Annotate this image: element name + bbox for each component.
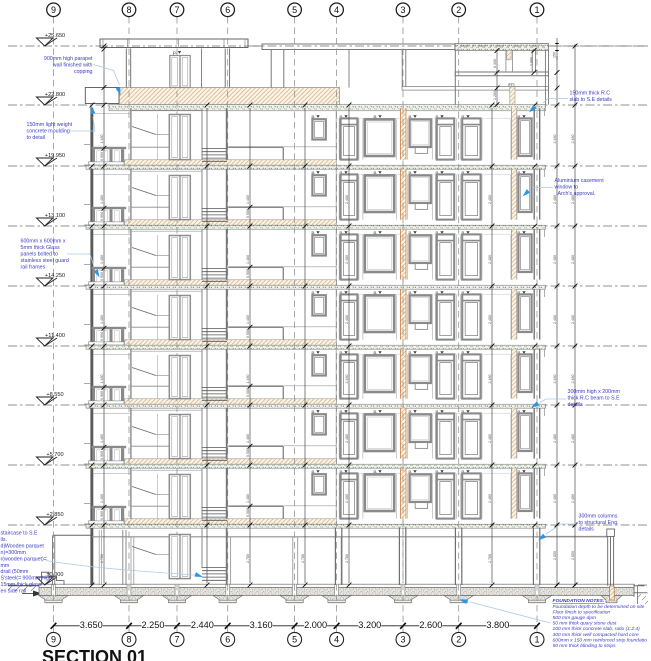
svg-text:2.480: 2.480 bbox=[571, 135, 575, 144]
svg-text:6: 6 bbox=[225, 5, 230, 15]
svg-text:2.780: 2.780 bbox=[246, 554, 250, 563]
svg-text:0.900: 0.900 bbox=[100, 152, 104, 161]
svg-text:rail frames: rail frames bbox=[21, 265, 46, 271]
svg-text:FOUNDATION NOTES:: FOUNDATION NOTES: bbox=[553, 598, 605, 604]
svg-text:window to: window to bbox=[555, 185, 579, 191]
svg-text:7: 7 bbox=[174, 634, 179, 644]
svg-text:0.580: 0.580 bbox=[246, 329, 250, 338]
svg-text:3: 3 bbox=[400, 634, 405, 644]
svg-text:2.480: 2.480 bbox=[571, 494, 575, 503]
svg-text:8: 8 bbox=[126, 634, 131, 644]
svg-text:details: details bbox=[579, 527, 595, 533]
svg-text:1.880: 1.880 bbox=[530, 57, 534, 66]
svg-text:concrete moulding: concrete moulding bbox=[27, 129, 70, 135]
svg-text:2.250: 2.250 bbox=[142, 620, 165, 630]
svg-text:3.800: 3.800 bbox=[486, 620, 509, 630]
svg-text:to detail: to detail bbox=[27, 135, 46, 141]
svg-text:thick R.C beam to S.E: thick R.C beam to S.E bbox=[568, 396, 621, 402]
svg-text:staircase to S.E: staircase to S.E bbox=[1, 531, 39, 537]
svg-text:2.780: 2.780 bbox=[488, 554, 492, 563]
svg-text:Foundation depth to be determi: Foundation depth to be determined on sit… bbox=[553, 604, 645, 610]
svg-text:600mm x 150 mm reinforced stri: 600mm x 150 mm reinforced strip foundati… bbox=[553, 637, 648, 643]
svg-text:500 mm gauge dpm: 500 mm gauge dpm bbox=[553, 615, 597, 621]
svg-text:9: 9 bbox=[51, 634, 56, 644]
svg-text:2.480: 2.480 bbox=[488, 255, 492, 264]
svg-text:2.480: 2.480 bbox=[345, 255, 349, 264]
svg-text:2.480: 2.480 bbox=[553, 434, 557, 443]
svg-text:2.480: 2.480 bbox=[488, 434, 492, 443]
svg-text:2.480: 2.480 bbox=[488, 494, 492, 503]
svg-text:1.480: 1.480 bbox=[246, 195, 250, 204]
svg-text:2.780: 2.780 bbox=[100, 554, 104, 563]
svg-text:1.480: 1.480 bbox=[100, 195, 104, 204]
svg-text:1.480: 1.480 bbox=[246, 255, 250, 264]
svg-text:2.850: 2.850 bbox=[571, 551, 575, 560]
svg-text:2.480: 2.480 bbox=[345, 315, 349, 324]
svg-text:2.480: 2.480 bbox=[345, 494, 349, 503]
svg-text:2.440: 2.440 bbox=[191, 620, 214, 630]
svg-text:2: 2 bbox=[456, 5, 461, 15]
svg-text:slab to S.E details: slab to S.E details bbox=[570, 97, 613, 103]
svg-text:1.480: 1.480 bbox=[246, 494, 250, 503]
svg-text:stainless steel guard: stainless steel guard bbox=[21, 258, 69, 264]
svg-text:en side rail: en side rail bbox=[1, 589, 27, 595]
svg-text:1.480: 1.480 bbox=[100, 494, 104, 503]
svg-text:3: 3 bbox=[400, 5, 405, 15]
svg-text:2.480: 2.480 bbox=[553, 195, 557, 204]
svg-text:2: 2 bbox=[456, 634, 461, 644]
svg-text:4: 4 bbox=[334, 634, 339, 644]
svg-text:1.280: 1.280 bbox=[493, 91, 497, 100]
svg-text:2.480: 2.480 bbox=[571, 255, 575, 264]
svg-text:Aluminium casement: Aluminium casement bbox=[555, 178, 605, 184]
svg-text:2.480: 2.480 bbox=[553, 315, 557, 324]
svg-text:to structural Eng.: to structural Eng. bbox=[579, 520, 619, 526]
svg-text:900mm high parapet: 900mm high parapet bbox=[44, 56, 93, 62]
svg-text:300mm high x 200mm: 300mm high x 200mm bbox=[568, 389, 621, 395]
svg-text:150mm thick R.C: 150mm thick R.C bbox=[570, 91, 611, 97]
svg-text:5mm thick Glass: 5mm thick Glass bbox=[21, 245, 60, 251]
svg-text:ils.: ils. bbox=[1, 537, 7, 543]
svg-text:2.600: 2.600 bbox=[419, 620, 442, 630]
svg-text:1: 1 bbox=[534, 634, 539, 644]
svg-text:n)=300mm: n)=300mm bbox=[1, 550, 27, 556]
svg-text:1.480: 1.480 bbox=[100, 434, 104, 443]
svg-text:mm: mm bbox=[1, 563, 10, 569]
svg-text:panels bolted to: panels bolted to bbox=[21, 252, 58, 258]
svg-text:0.580: 0.580 bbox=[246, 508, 250, 517]
svg-text:0.900: 0.900 bbox=[100, 212, 104, 221]
svg-text:7: 7 bbox=[174, 5, 179, 15]
svg-text:2.480: 2.480 bbox=[553, 494, 557, 503]
svg-text:1.480: 1.480 bbox=[100, 375, 104, 384]
svg-text:S'steel(= 900mm high: S'steel(= 900mm high bbox=[1, 576, 52, 582]
svg-text:copping: copping bbox=[74, 69, 93, 75]
svg-text:2.480: 2.480 bbox=[571, 375, 575, 384]
svg-text:2.480: 2.480 bbox=[488, 195, 492, 204]
svg-text:300mm columns: 300mm columns bbox=[579, 514, 618, 520]
svg-text:3.200: 3.200 bbox=[358, 620, 381, 630]
svg-text:600mm x 600mm x: 600mm x 600mm x bbox=[21, 239, 66, 245]
svg-text:2.480: 2.480 bbox=[553, 375, 557, 384]
svg-text:150: 150 bbox=[553, 52, 557, 58]
svg-text:0.900: 0.900 bbox=[100, 511, 104, 520]
svg-text:300 mm thick well compacted ha: 300 mm thick well compacted hard core bbox=[553, 632, 639, 638]
svg-text:2.480: 2.480 bbox=[553, 255, 557, 264]
svg-text:0.900: 0.900 bbox=[100, 272, 104, 281]
svg-text:1.480: 1.480 bbox=[246, 315, 250, 324]
svg-text:2.480: 2.480 bbox=[488, 315, 492, 324]
svg-text:wall finished with: wall finished with bbox=[53, 63, 93, 69]
svg-text:0.580: 0.580 bbox=[246, 388, 250, 397]
svg-text:r(wooden parquet)=: r(wooden parquet)= bbox=[1, 556, 47, 562]
svg-text:8: 8 bbox=[126, 5, 131, 15]
svg-text:150mm light weight: 150mm light weight bbox=[27, 122, 73, 128]
svg-text:2.480: 2.480 bbox=[488, 375, 492, 384]
svg-text:2.780: 2.780 bbox=[345, 554, 349, 563]
svg-text:2.480: 2.480 bbox=[345, 434, 349, 443]
svg-text:details: details bbox=[568, 402, 584, 408]
svg-text:0.900: 0.900 bbox=[100, 451, 104, 460]
svg-text:0.900: 0.900 bbox=[100, 391, 104, 400]
svg-text:1.480: 1.480 bbox=[246, 434, 250, 443]
svg-text:9: 9 bbox=[51, 5, 56, 15]
svg-text:2.480: 2.480 bbox=[345, 195, 349, 204]
svg-text:1.480: 1.480 bbox=[100, 135, 104, 144]
svg-text:5: 5 bbox=[292, 5, 297, 15]
svg-text:0.900: 0.900 bbox=[100, 332, 104, 341]
svg-text:0.580: 0.580 bbox=[246, 209, 250, 218]
svg-text:d|Wooden parquet: d|Wooden parquet bbox=[1, 543, 45, 549]
svg-text:5: 5 bbox=[292, 634, 297, 644]
svg-text:1.480: 1.480 bbox=[100, 315, 104, 324]
svg-text:100 mm thick concrete slab, ra: 100 mm thick concrete slab, ratio (1:2:4… bbox=[553, 626, 641, 632]
svg-text:0.580: 0.580 bbox=[246, 269, 250, 278]
svg-text:2.480: 2.480 bbox=[571, 434, 575, 443]
svg-text:6.300: 6.300 bbox=[493, 59, 497, 68]
svg-text:15mm thick glass: 15mm thick glass bbox=[1, 582, 42, 588]
svg-text:2.000: 2.000 bbox=[304, 620, 327, 630]
svg-text:2.480: 2.480 bbox=[345, 375, 349, 384]
svg-text:4: 4 bbox=[334, 5, 339, 15]
svg-text:1.480: 1.480 bbox=[246, 375, 250, 384]
svg-text:drail (50mm: drail (50mm bbox=[1, 569, 30, 575]
svg-text:50 mm thick quary stone dust: 50 mm thick quary stone dust bbox=[553, 621, 618, 627]
svg-text:2.480: 2.480 bbox=[571, 315, 575, 324]
svg-text:Floor finish to specification: Floor finish to specification bbox=[553, 609, 611, 615]
svg-text:0.580: 0.580 bbox=[246, 448, 250, 457]
svg-text:50 mm thick blinding to strips: 50 mm thick blinding to strips bbox=[553, 643, 617, 649]
svg-text:3.160: 3.160 bbox=[250, 620, 273, 630]
svg-text:2.480: 2.480 bbox=[553, 135, 557, 144]
svg-text:3.650: 3.650 bbox=[80, 620, 103, 630]
svg-text:2.850: 2.850 bbox=[553, 551, 557, 560]
svg-text:SECTION 01: SECTION 01 bbox=[42, 647, 147, 661]
svg-text:Arch's approval.: Arch's approval. bbox=[558, 191, 596, 197]
svg-text:1.480: 1.480 bbox=[100, 255, 104, 264]
svg-text:6: 6 bbox=[225, 634, 230, 644]
svg-text:1: 1 bbox=[534, 5, 539, 15]
svg-text:2.780: 2.780 bbox=[301, 554, 305, 563]
